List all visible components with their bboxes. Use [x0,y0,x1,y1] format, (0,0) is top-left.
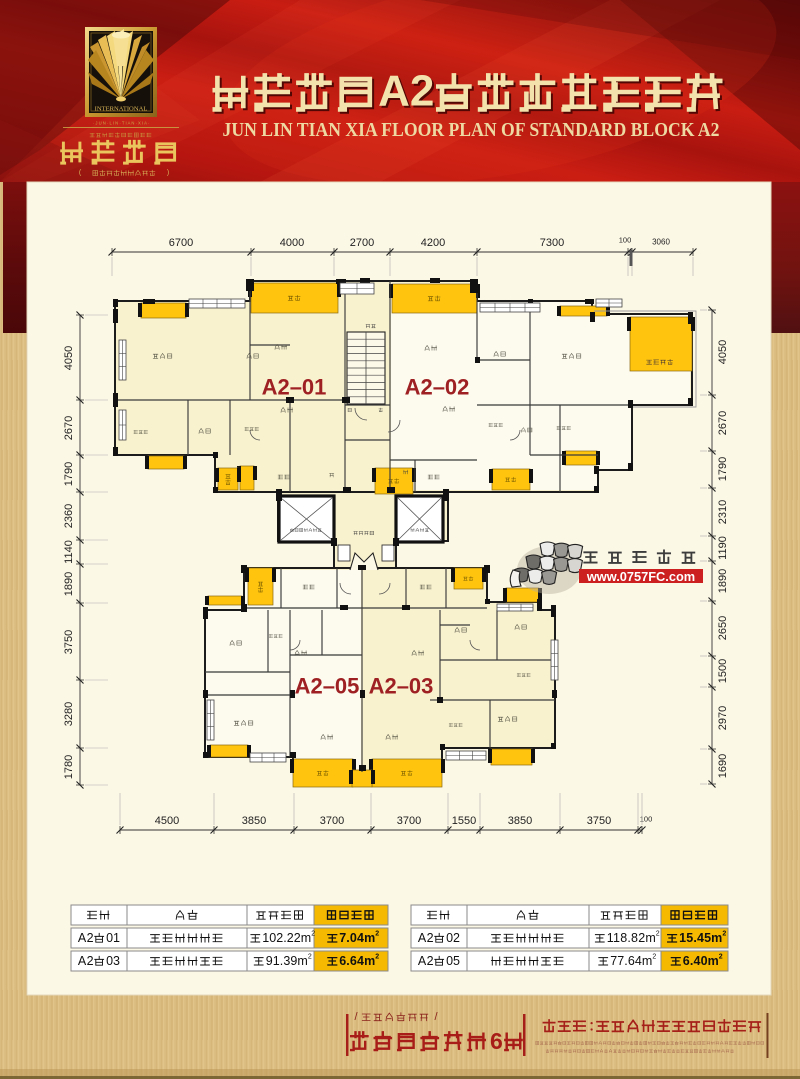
svg-text:1890: 1890 [63,572,75,596]
svg-text:6: 6 [490,1028,503,1054]
svg-text:3700: 3700 [397,815,421,827]
svg-text:A2: A2 [78,931,94,945]
svg-text:91.39m: 91.39m [266,954,308,968]
svg-text:2: 2 [311,931,315,938]
svg-text:INTERNATIONAL: INTERNATIONAL [95,106,148,113]
svg-text:3700: 3700 [320,815,344,827]
svg-text:www.0757FC.com: www.0757FC.com [586,569,695,584]
svg-text:3850: 3850 [508,815,532,827]
svg-text:2650: 2650 [717,616,729,640]
svg-text:3750: 3750 [587,815,611,827]
svg-text:4050: 4050 [63,346,75,370]
svg-text:4200: 4200 [421,237,445,249]
svg-text:118.82m: 118.82m [607,931,656,945]
svg-text:3280: 3280 [63,702,75,726]
svg-text:15.45m: 15.45m [679,931,722,945]
svg-text:JUN LIN TIAN XIA FLOOR PLAN OF: JUN LIN TIAN XIA FLOOR PLAN OF STANDARD … [223,119,720,141]
svg-text:A2: A2 [378,67,434,116]
svg-text:· J U N · L I N · T I A N · X: · J U N · L I N · T I A N · X I A · [93,121,149,126]
svg-text:A2–05: A2–05 [295,674,360,699]
svg-text:05: 05 [446,954,460,968]
svg-text:2: 2 [719,954,723,961]
svg-text:2: 2 [722,931,726,938]
svg-text:2: 2 [308,954,312,961]
svg-text:6.40m: 6.40m [683,954,719,968]
svg-text:A2–02: A2–02 [405,375,470,400]
svg-text:A2: A2 [418,954,434,968]
svg-text:2360: 2360 [63,504,75,528]
svg-text:100: 100 [640,815,653,824]
svg-text:4050: 4050 [717,340,729,364]
svg-text:02: 02 [446,931,460,945]
svg-text:1140: 1140 [63,540,75,564]
svg-text:2: 2 [652,954,656,961]
svg-text:2700: 2700 [350,237,374,249]
svg-text:6700: 6700 [169,237,193,249]
svg-text:1780: 1780 [63,755,75,779]
svg-text:1790: 1790 [63,462,75,486]
svg-text:2: 2 [656,931,660,938]
svg-text:1550: 1550 [452,815,476,827]
svg-text:4500: 4500 [155,815,179,827]
svg-text:1500: 1500 [717,659,729,683]
svg-text:2670: 2670 [63,416,75,440]
svg-text:102.22m: 102.22m [262,931,311,945]
svg-text:1890: 1890 [717,569,729,593]
svg-text:2: 2 [375,931,379,938]
svg-text:A2–03: A2–03 [369,674,434,699]
svg-text:6.64m: 6.64m [339,954,375,968]
svg-text:A2: A2 [418,931,434,945]
svg-text:3750: 3750 [63,630,75,654]
svg-text:1690: 1690 [717,754,729,778]
svg-text:1190: 1190 [717,536,729,560]
svg-text:3850: 3850 [242,815,266,827]
svg-text:100: 100 [619,236,632,245]
svg-text:01: 01 [106,931,120,945]
svg-text:2: 2 [375,954,379,961]
svg-text:7300: 7300 [540,237,564,249]
svg-text:3060: 3060 [652,238,670,247]
svg-text:2310: 2310 [717,500,729,524]
svg-text:03: 03 [106,954,120,968]
svg-text:7.04m: 7.04m [339,931,375,945]
svg-text:1790: 1790 [717,457,729,481]
svg-text:A2–01: A2–01 [262,375,327,400]
svg-text:77.64m: 77.64m [610,954,652,968]
svg-text:): ) [167,170,169,177]
svg-text:4000: 4000 [280,237,304,249]
svg-text:2970: 2970 [717,706,729,730]
svg-text:A2: A2 [78,954,94,968]
svg-text:2670: 2670 [717,411,729,435]
